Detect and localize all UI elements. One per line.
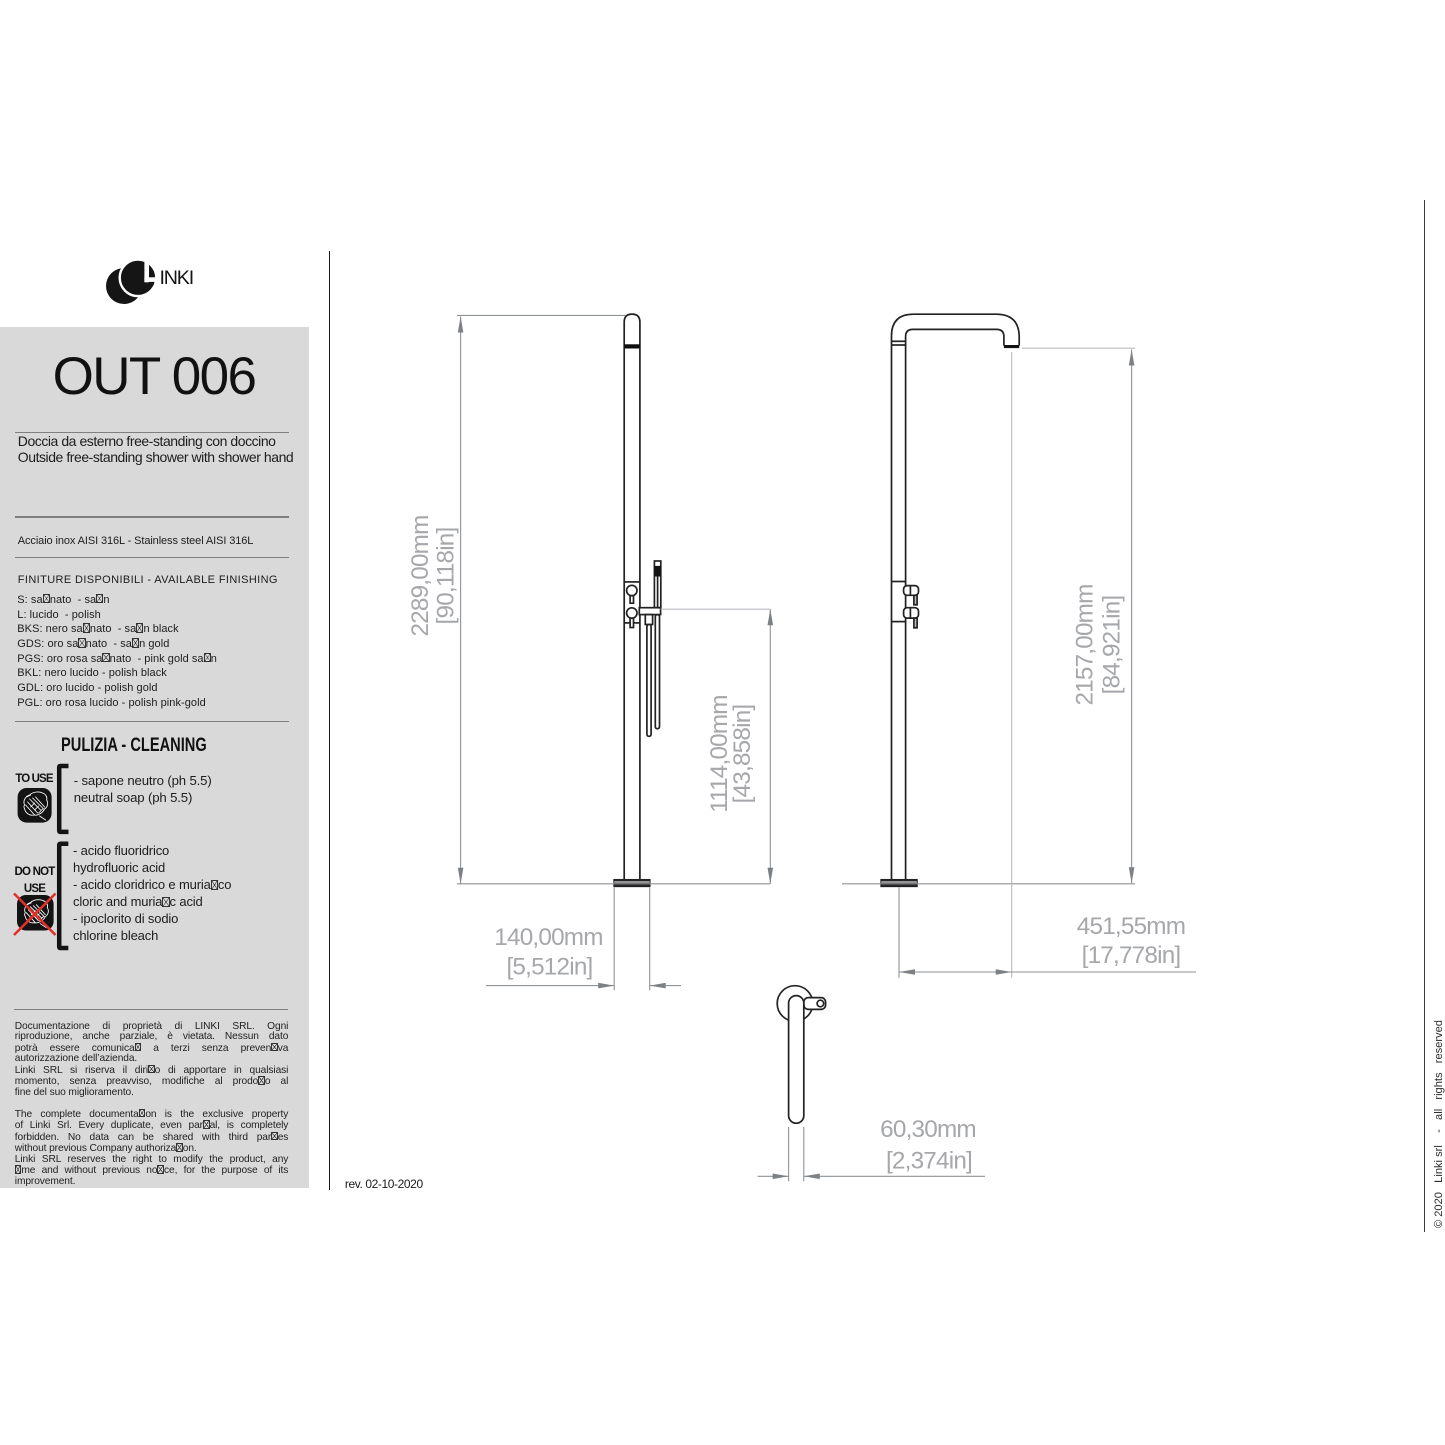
svg-text:[5,512in]: [5,512in] bbox=[506, 954, 592, 981]
svg-text:[90,118in]: [90,118in] bbox=[433, 527, 460, 624]
svg-text:[43,858in]: [43,858in] bbox=[729, 705, 756, 804]
svg-text:451,55mm: 451,55mm bbox=[1077, 913, 1185, 940]
svg-text:140,00mm: 140,00mm bbox=[494, 924, 602, 951]
svg-text:[17,778in]: [17,778in] bbox=[1082, 942, 1181, 969]
svg-text:60,30mm: 60,30mm bbox=[880, 1116, 976, 1143]
svg-text:[84,921in]: [84,921in] bbox=[1099, 596, 1126, 695]
svg-text:[2,374in]: [2,374in] bbox=[886, 1148, 972, 1175]
svg-text:2157,00mm: 2157,00mm bbox=[1072, 584, 1099, 705]
svg-text:2289,00mm: 2289,00mm bbox=[407, 515, 434, 636]
